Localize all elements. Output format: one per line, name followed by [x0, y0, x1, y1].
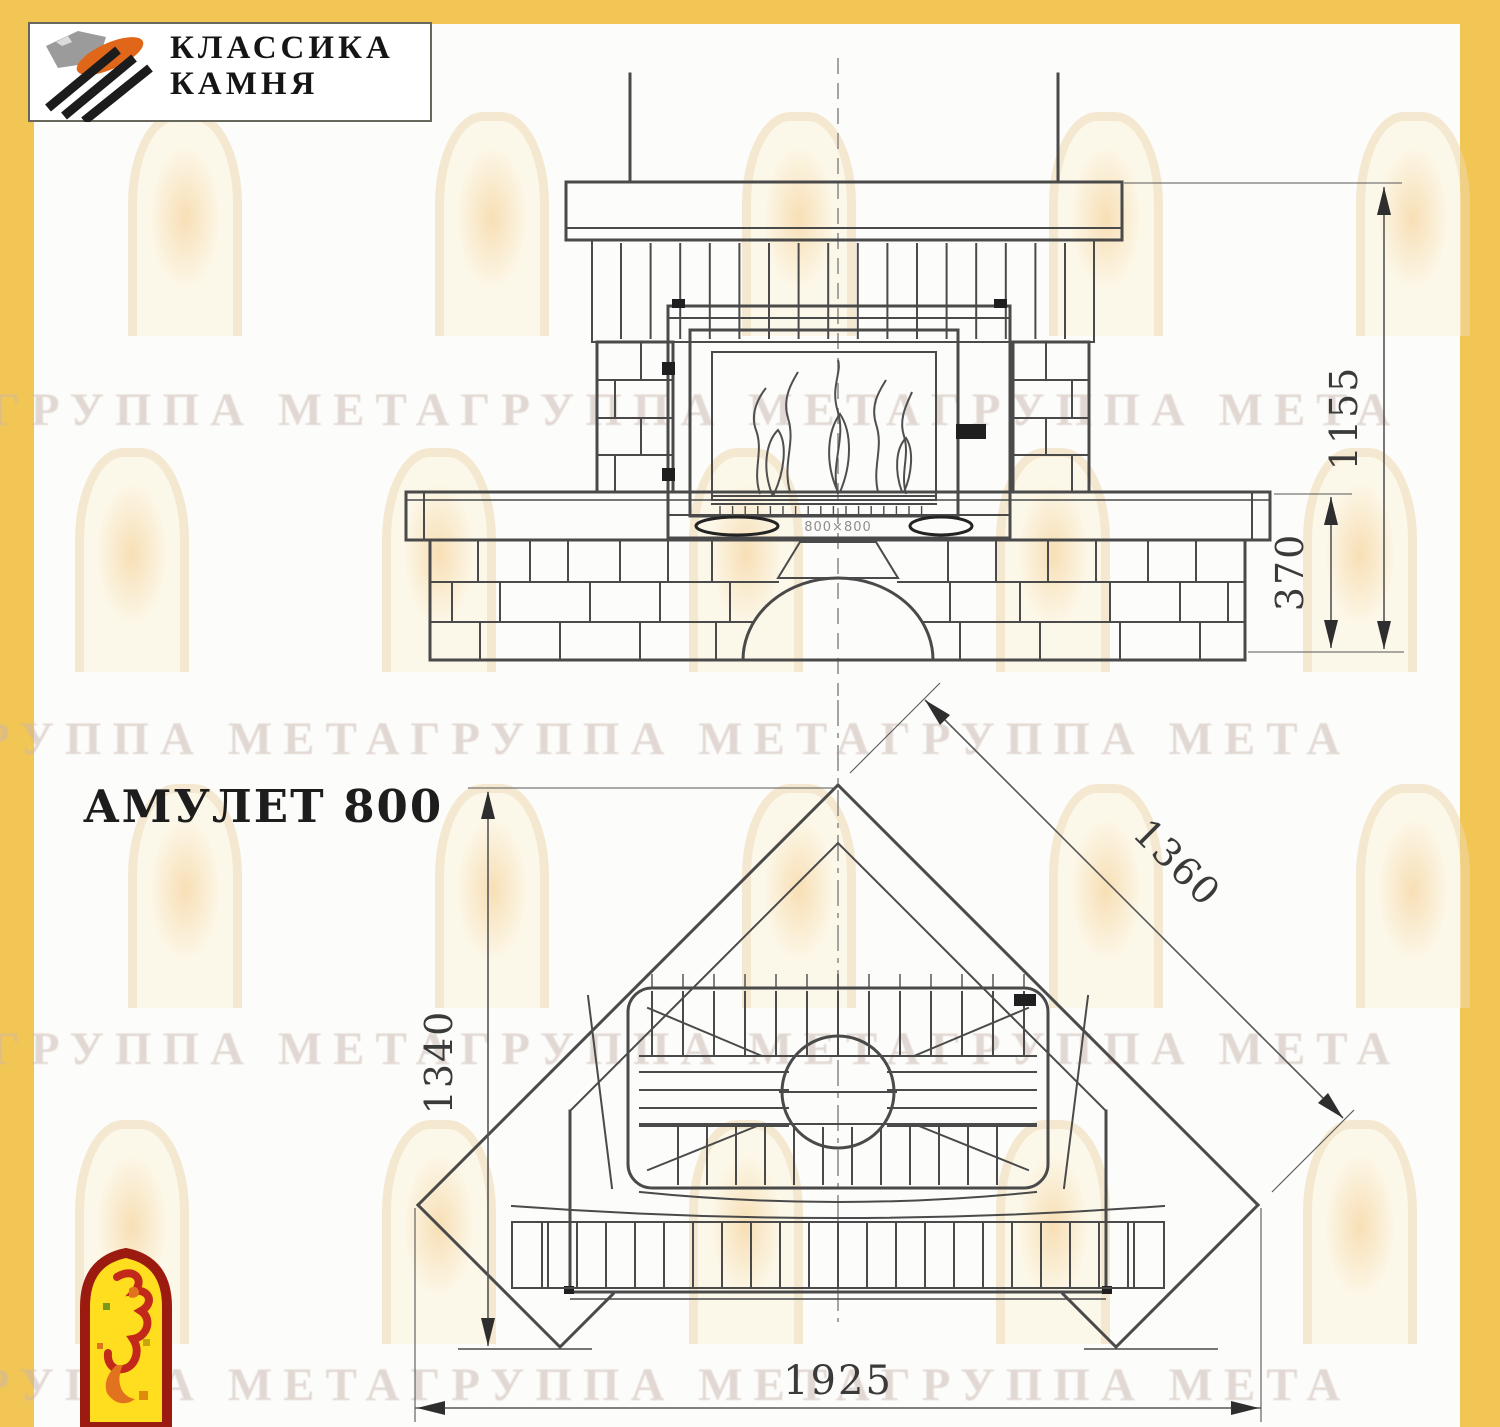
dimension-total-height: 1155 — [1322, 366, 1366, 471]
front-elevation-view: 800×800 — [406, 58, 1404, 696]
bench-wing-right — [1063, 1205, 1258, 1347]
brand-name: КЛАССИКА КАМНЯ — [170, 30, 394, 102]
brand-logo: КЛАССИКА КАМНЯ — [28, 22, 432, 122]
firebird-arch-logo — [77, 1245, 175, 1427]
insert-marking-label: 800×800 — [804, 520, 872, 535]
grate-bars — [720, 506, 922, 514]
insert-door-frame — [690, 330, 958, 516]
dimension-bench-height: 370 — [1268, 533, 1312, 612]
brand-name-line1: КЛАССИКА — [170, 30, 394, 66]
door-hinge-bottom — [662, 468, 675, 481]
scanned-drawing-page: ГРУППА МЕТАГРУППА МЕТАГРУППА МЕТА ГРУППА… — [0, 0, 1500, 1427]
door-hinge-top — [662, 362, 675, 375]
brand-name-line2: КАМНЯ — [170, 66, 394, 102]
brick-pier-left — [597, 342, 673, 492]
mantel-shelf — [566, 182, 1122, 240]
air-vent-right — [910, 517, 972, 535]
air-vent-left — [696, 517, 778, 535]
product-title: АМУЛЕТ 800 — [83, 780, 443, 833]
door-handle — [956, 424, 986, 439]
dimension-depth: 1340 — [417, 1010, 461, 1115]
fireplace-technical-drawing: 800×800 — [0, 0, 1500, 1427]
plan-dimensions: 1340 1360 1925 — [415, 683, 1354, 1422]
bench-wing-left — [418, 1205, 613, 1347]
dimension-diagonal: 1360 — [1125, 810, 1230, 915]
firebox-insert: 800×800 — [662, 299, 1010, 538]
plan-view: 1340 1360 1925 — [415, 683, 1354, 1422]
dimension-width: 1925 — [783, 1358, 893, 1404]
brick-pier-right — [1013, 342, 1089, 492]
plan-bench-band — [512, 1222, 1164, 1288]
stone-logo-icon — [38, 26, 172, 122]
flames — [754, 360, 912, 494]
